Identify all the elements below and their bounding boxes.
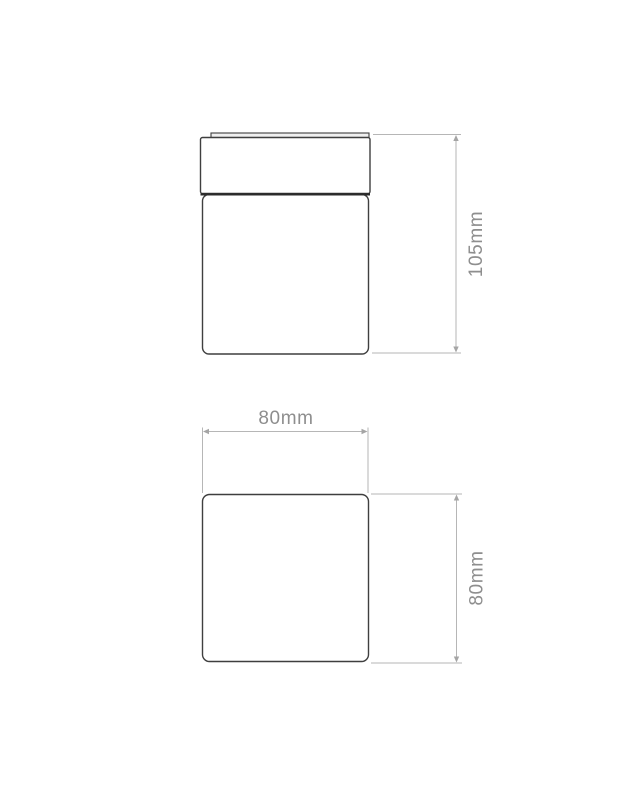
plan-view: 80mm 80mm <box>203 408 488 663</box>
dimension-drawing-page: 105mm 80mm 80mm <box>0 0 640 800</box>
arrowhead-down-icon <box>453 347 458 353</box>
arrowhead-left-icon <box>203 429 209 434</box>
height-dimension-label: 105mm <box>466 211 487 277</box>
dimension-drawing: 105mm 80mm 80mm <box>0 0 640 800</box>
arrowhead-up-icon <box>454 495 459 501</box>
plan-body-outline <box>203 495 369 662</box>
side-view: 105mm <box>201 133 488 354</box>
fixture-body-outline <box>203 195 369 355</box>
width-dimension: 80mm <box>203 408 369 493</box>
arrowhead-up-icon <box>453 135 458 141</box>
fixture-cap-outline <box>201 138 371 194</box>
arrowhead-right-icon <box>362 429 368 434</box>
width-dimension-label: 80mm <box>258 408 313 429</box>
depth-dimension: 80mm <box>371 494 488 663</box>
depth-dimension-label: 80mm <box>467 550 488 605</box>
height-dimension: 105mm <box>372 135 487 354</box>
arrowhead-down-icon <box>454 657 459 663</box>
